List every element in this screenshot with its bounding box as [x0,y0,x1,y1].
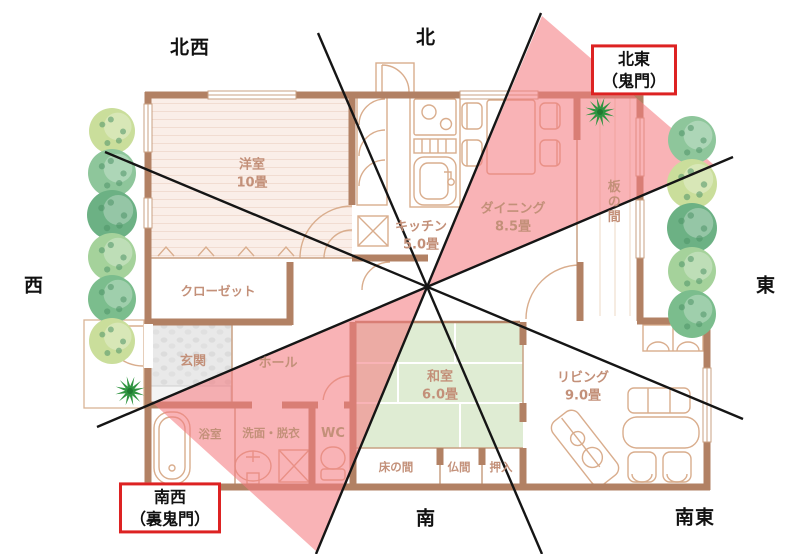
room-label-bath: 浴室 [199,427,222,443]
room-label-tokonoma: 床の間 [379,460,414,476]
direction-northwest: 北西 [170,33,210,60]
room-label-wc: WC [321,425,345,443]
tree-icon [667,203,717,253]
plant-center [127,388,133,394]
tree-icon [87,190,137,240]
room-label-butsuma: 仏間 [448,460,471,476]
room-label-western-room: 洋室10畳 [236,156,267,191]
kitchen-drawers [414,139,456,153]
room-label-japanese-room: 和室6.0畳 [422,368,458,403]
kitchen-counter [410,95,460,207]
living-table [623,417,699,448]
direction-north: 北 [416,23,436,50]
urakimon-line2: （裏鬼門） [130,508,210,530]
drain [169,465,175,471]
room-label-hall: ホール [258,355,297,373]
direction-southeast: 南東 [675,503,715,530]
kaso-floorplan-diagram: 北西 北 西 東 南 南東 北東 （鬼門） 南西 （裏鬼門） 洋室10畳 クロー… [0,0,800,554]
stove [414,99,456,135]
southwest-urakimon-label: 南西 （裏鬼門） [119,482,221,533]
tree-icon [88,233,136,281]
room-label-oshiire: 押入 [490,460,513,476]
tree-icon [88,275,136,323]
room-label-itanoma: 板の間 [603,180,621,225]
door-arc [526,265,580,319]
tree-icon [89,108,135,154]
cabinet-doors [359,99,385,186]
direction-south: 南 [416,504,436,531]
stove-burner [441,119,452,130]
room-label-living: リビング9.0畳 [557,369,609,404]
room-label-dining: ダイニング8.5畳 [480,200,545,235]
room-label-kitchen: キッチン5.0畳 [395,218,447,253]
room-label-closet: クローゼット [180,284,255,301]
direction-west: 西 [24,271,44,298]
kimon-line2: （鬼門） [602,70,666,92]
tree-icon [668,116,716,164]
room-label-entrance: 玄関 [180,353,206,371]
room-label-washroom: 洗面・脱衣 [242,426,300,442]
guitar [548,407,622,490]
tree-icon [668,247,716,295]
plant-center [597,109,603,115]
dining-chair [462,103,482,129]
faucet [448,179,454,185]
sink-basin [420,163,448,199]
tree-icon [89,318,135,364]
tree-icon [668,290,716,338]
urakimon-line1: 南西 [130,486,210,508]
northeast-kimon-label: 北東 （鬼門） [591,44,677,95]
kimon-line1: 北東 [602,48,666,70]
stove-burner [422,105,436,119]
direction-east: 東 [756,271,776,298]
